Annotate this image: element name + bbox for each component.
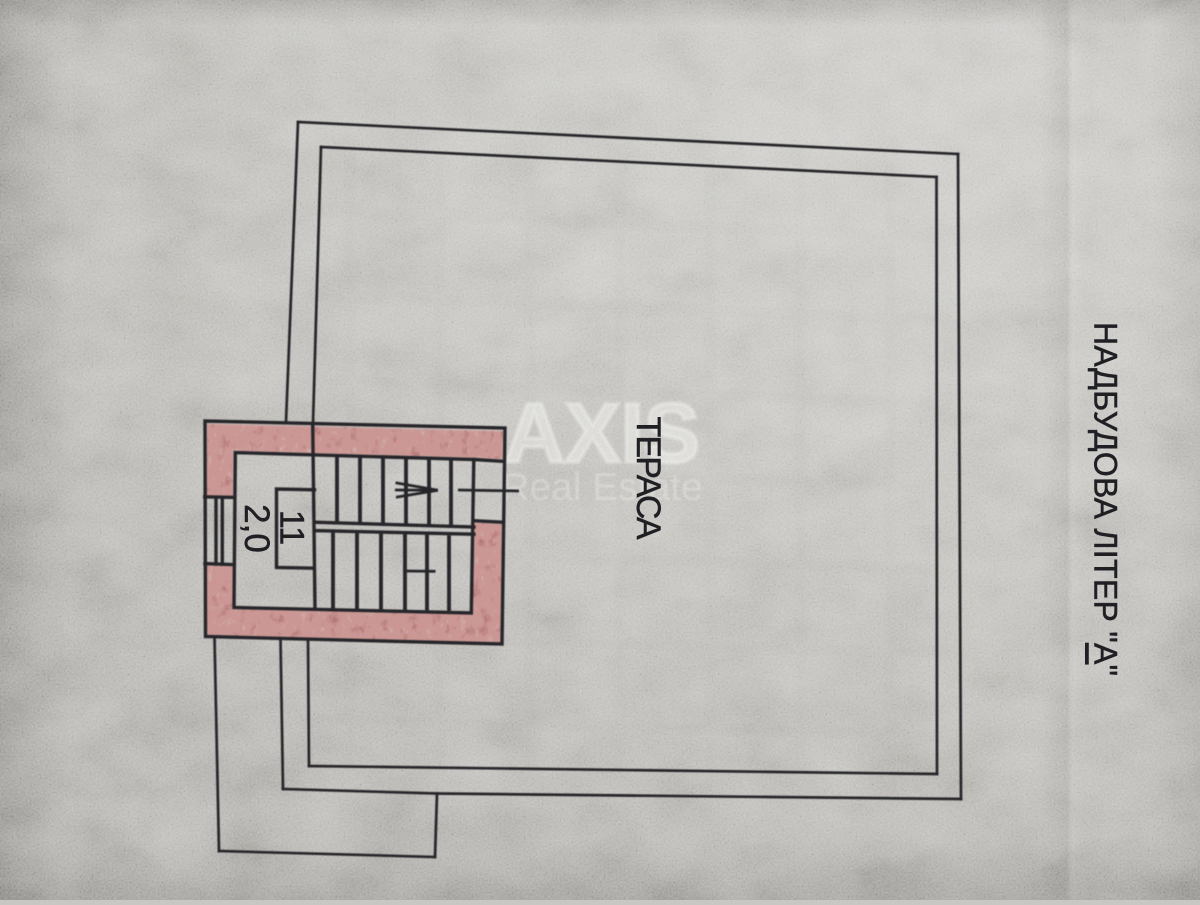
svg-text:Real Estate: Real Estate <box>501 466 703 509</box>
svg-text:2,0: 2,0 <box>237 504 276 553</box>
svg-text:11: 11 <box>272 510 310 545</box>
svg-text:ТЕРАСА: ТЕРАСА <box>629 417 667 540</box>
svg-text:НАДБУДОВА ЛІТЕР "А": НАДБУДОВА ЛІТЕР "А" <box>1088 322 1124 676</box>
